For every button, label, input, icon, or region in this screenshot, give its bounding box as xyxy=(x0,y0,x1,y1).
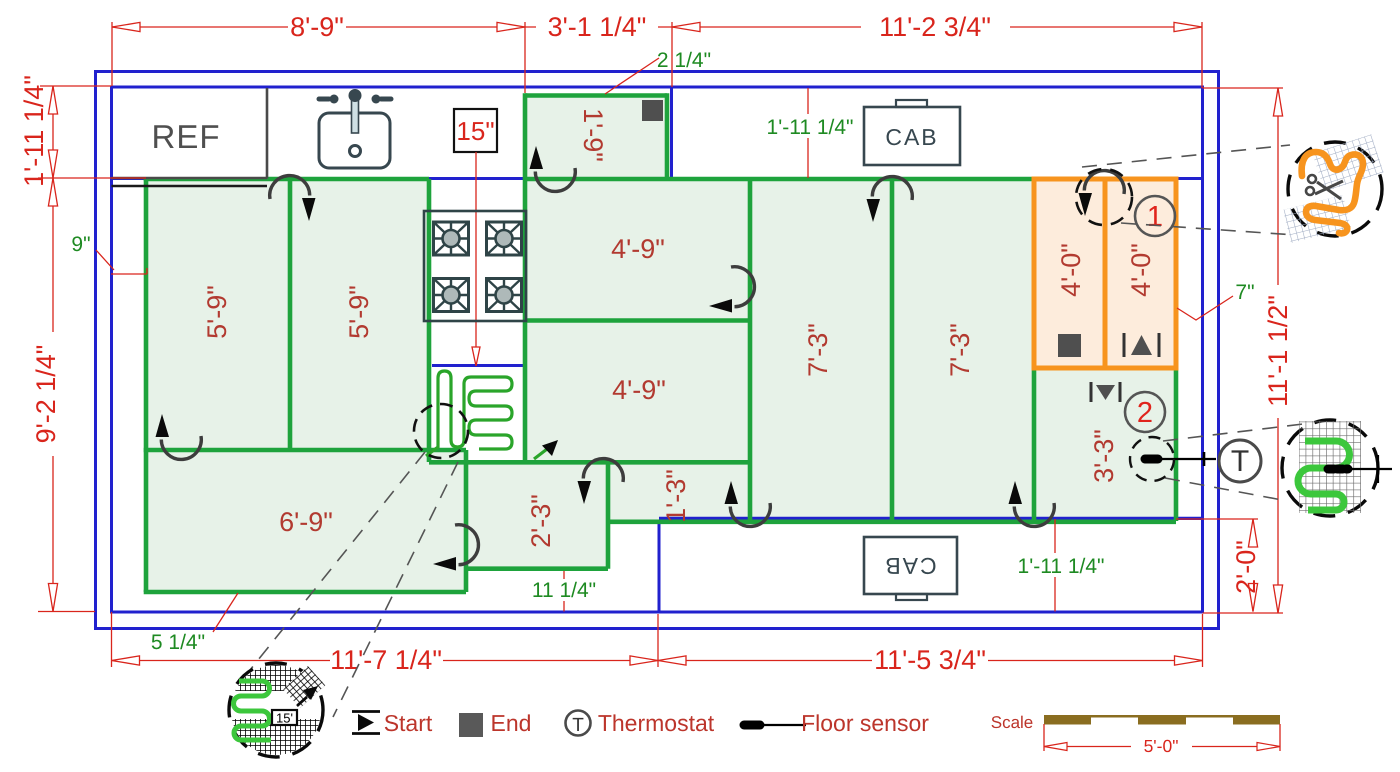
svg-text:1'-11 1/4": 1'-11 1/4" xyxy=(1018,555,1105,578)
svg-text:5'-0": 5'-0" xyxy=(1144,736,1179,756)
svg-text:5 1/4": 5 1/4" xyxy=(151,631,205,654)
svg-text:2'-3": 2'-3" xyxy=(526,494,556,548)
svg-text:9'-2 1/4": 9'-2 1/4" xyxy=(31,345,61,444)
svg-text:3'-1 1/4": 3'-1 1/4" xyxy=(548,12,647,42)
svg-text:Start: Start xyxy=(384,710,433,736)
svg-text:11'-2 3/4": 11'-2 3/4" xyxy=(879,12,991,42)
svg-text:7": 7" xyxy=(1235,281,1254,304)
svg-text:Thermostat: Thermostat xyxy=(598,710,715,736)
svg-text:4'-9": 4'-9" xyxy=(611,234,665,264)
svg-text:Floor sensor: Floor sensor xyxy=(801,710,929,736)
svg-text:4'-9": 4'-9" xyxy=(612,375,666,405)
svg-text:9": 9" xyxy=(71,233,90,256)
svg-text:5'-9": 5'-9" xyxy=(202,285,232,339)
svg-text:4'-0": 4'-0" xyxy=(1126,243,1156,297)
svg-text:2'-0": 2'-0" xyxy=(1231,540,1261,594)
svg-text:7'-3": 7'-3" xyxy=(945,323,975,377)
svg-text:15": 15" xyxy=(456,116,494,146)
svg-text:11'-5 3/4": 11'-5 3/4" xyxy=(874,645,986,675)
svg-text:2 1/4": 2 1/4" xyxy=(657,49,711,72)
svg-text:4'-0": 4'-0" xyxy=(1056,243,1086,297)
svg-text:REF: REF xyxy=(152,118,221,155)
svg-text:1'-3": 1'-3" xyxy=(661,469,691,523)
svg-text:CAB: CAB xyxy=(883,553,936,579)
svg-text:5'-9": 5'-9" xyxy=(344,285,374,339)
svg-text:7'-3": 7'-3" xyxy=(803,323,833,377)
svg-text:1'-11 1/4": 1'-11 1/4" xyxy=(767,116,854,139)
svg-text:Scale: Scale xyxy=(991,713,1034,732)
svg-text:6'-9": 6'-9" xyxy=(279,507,333,537)
svg-text:11 1/4": 11 1/4" xyxy=(532,579,596,602)
svg-text:11'-7 1/4": 11'-7 1/4" xyxy=(330,645,442,675)
svg-text:11'-1 1/2": 11'-1 1/2" xyxy=(1263,295,1293,407)
svg-text:CAB: CAB xyxy=(885,124,938,150)
svg-text:8'-9": 8'-9" xyxy=(290,12,344,42)
svg-text:1'-9": 1'-9" xyxy=(578,108,608,162)
svg-text:3'-3": 3'-3" xyxy=(1089,429,1119,483)
svg-text:T: T xyxy=(572,715,584,736)
svg-text:15': 15' xyxy=(276,711,293,726)
svg-text:1: 1 xyxy=(1147,201,1163,233)
svg-text:T: T xyxy=(1231,445,1249,478)
svg-text:End: End xyxy=(491,710,532,736)
svg-text:2: 2 xyxy=(1137,397,1153,429)
svg-text:1'-11 1/4": 1'-11 1/4" xyxy=(19,75,49,187)
